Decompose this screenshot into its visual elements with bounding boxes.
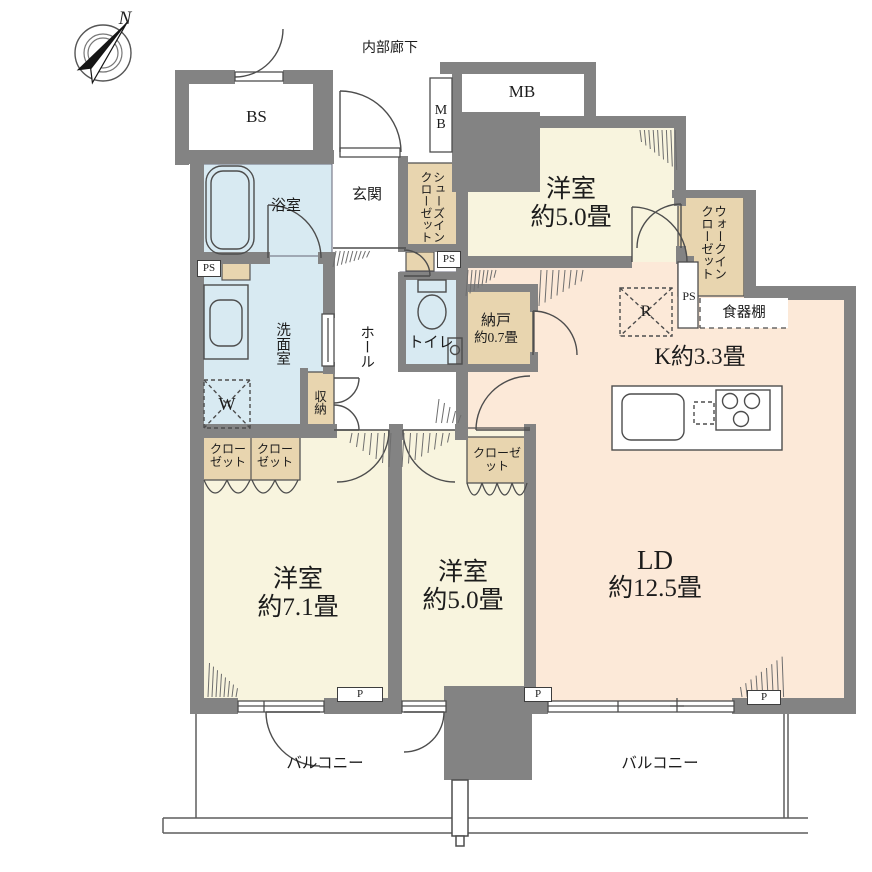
corridor-label: 内部廊下 [350,40,430,58]
ld-label: LD 約12.5畳 [555,538,755,610]
hall-label: ホール [357,318,375,376]
bedroom2-name: 洋室 [438,559,488,587]
nando-label: 納戸 約0.7畳 [458,294,534,364]
mb-duct-label: MB [432,88,450,148]
bedroom2-label: 洋室 約5.0畳 [396,551,530,623]
bathroom-label: 浴室 [260,197,312,215]
closet1b-label: クローゼット [253,434,297,478]
bedroom1-size: 約7.1畳 [257,594,338,622]
bedroom1-label: 洋室 約7.1畳 [198,558,398,630]
nando-name: 納戸 [481,313,511,330]
washroom-label: 洗面室 [272,316,292,372]
pillar3-label: P [747,690,781,705]
genkan-label: 玄関 [342,186,392,204]
ps-mid-label: PS [437,251,461,268]
sic-label: シューズインクローゼット [406,168,458,246]
mb-room-label: MB [462,72,582,112]
balcony-right-label: バルコニー [605,754,715,774]
storage-label: 収納 [311,383,327,421]
balcony-left-label: バルコニー [270,754,380,774]
pillar-base [452,780,468,836]
closet1a-label: クローゼット [206,434,250,478]
bedroom3-label: 洋室 約5.0畳 [460,162,682,246]
floor-plan: 内部廊下 N BS MB MB 玄関 シューズインクローゼット 浴室 洗面室 ト… [0,0,872,872]
bedroom3-size: 約5.0畳 [530,204,611,232]
ld-size: 約12.5畳 [608,575,702,603]
nando-size: 約0.7畳 [474,330,518,345]
fridge-label: R [620,288,672,336]
pillar2-label: P [524,687,552,702]
closet2-label: クローゼット [473,439,521,481]
pillar1-label: P [337,687,383,702]
bedroom3-name: 洋室 [546,176,596,204]
bedroom1-name: 洋室 [273,566,323,594]
wic-label: ウォークインクローゼット [688,202,736,282]
dish-shelf-label: 食器棚 [700,302,788,324]
washer-label: W [204,380,250,428]
kitchen-label: K約3.3畳 [600,342,800,372]
toilet-label: トイレ [404,335,458,352]
ld-name: LD [637,545,673,575]
bedroom2-size: 約5.0畳 [422,587,503,615]
compass-north-label: N [113,8,137,30]
bs-label: BS [200,87,313,147]
ps-left-label: PS [197,260,221,277]
